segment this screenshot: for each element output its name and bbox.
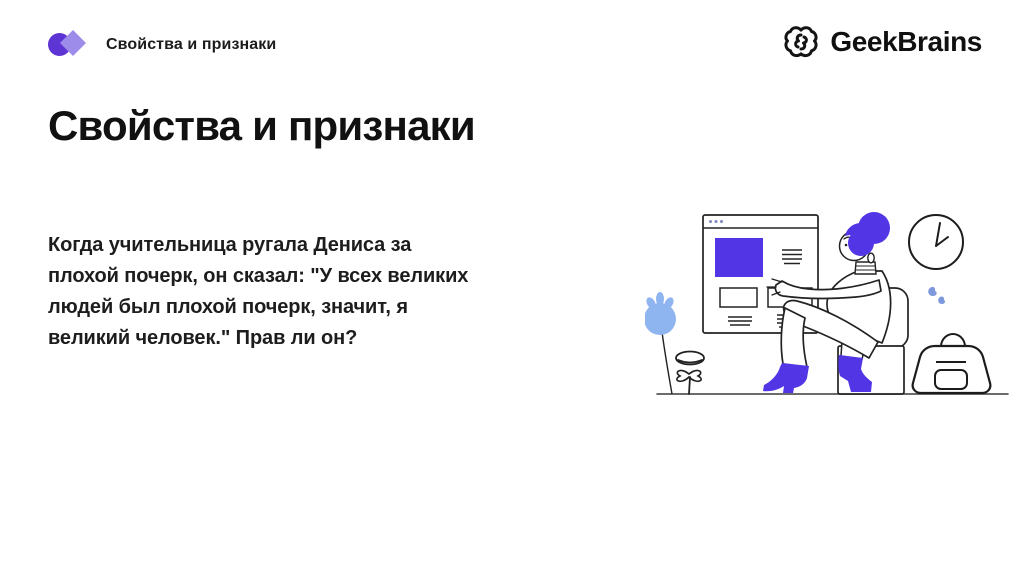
circle-diamond-icon bbox=[46, 29, 88, 60]
wall-clock bbox=[909, 215, 963, 269]
brand-name: GeekBrains bbox=[830, 26, 982, 58]
browser-dots bbox=[709, 220, 723, 223]
blue-plant bbox=[645, 292, 676, 394]
sparkles bbox=[928, 287, 945, 304]
illustration bbox=[645, 194, 1011, 406]
browser-hero-block bbox=[715, 238, 763, 277]
question-line-3: людей был плохой почерк, значит, я bbox=[48, 292, 468, 323]
topic-badge: Свойства и признаки bbox=[46, 29, 276, 60]
brand-logo: GeekBrains bbox=[781, 22, 982, 62]
topic-label: Свойства и признаки bbox=[106, 36, 276, 54]
backpack bbox=[913, 334, 991, 393]
small-plant bbox=[676, 352, 704, 395]
hair-bun bbox=[845, 212, 890, 256]
question-line-1: Когда учительница ругала Дениса за bbox=[48, 230, 468, 261]
question-line-2: плохой почерк, он сказал: "У всех велики… bbox=[48, 261, 468, 292]
slide-title: Свойства и признаки bbox=[48, 100, 475, 152]
slide: Свойства и признаки GeekBrains Свойства … bbox=[0, 0, 1024, 574]
front-boot bbox=[763, 363, 809, 393]
question-line-4: великий человек." Прав ли он? bbox=[48, 323, 468, 354]
brain-icon bbox=[781, 22, 821, 62]
question-text: Когда учительница ругала Дениса за плохо… bbox=[48, 230, 468, 354]
